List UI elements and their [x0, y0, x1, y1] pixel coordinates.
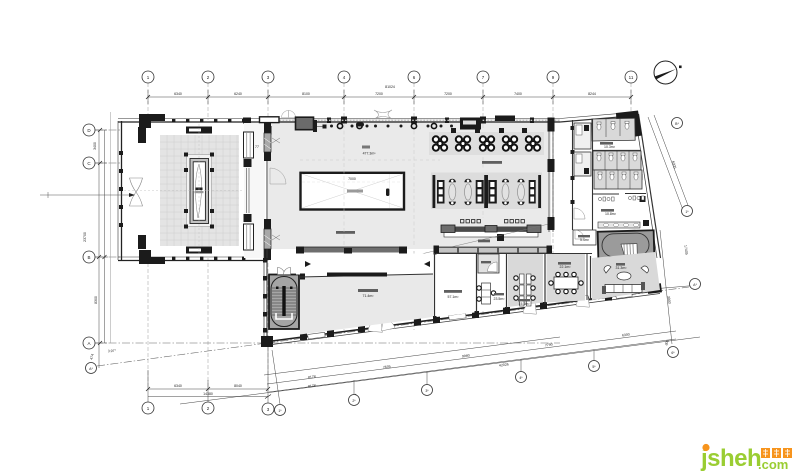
svg-text:71.4m²: 71.4m² — [363, 294, 375, 298]
svg-text:7200: 7200 — [444, 92, 452, 96]
svg-text:7000: 7000 — [348, 177, 356, 181]
svg-text:6340: 6340 — [174, 92, 182, 96]
svg-text:6240: 6240 — [234, 92, 242, 96]
svg-text:23700: 23700 — [83, 232, 87, 242]
svg-text:3.97°: 3.97° — [108, 349, 117, 354]
svg-text:.com: .com — [758, 457, 788, 472]
svg-text:B: B — [87, 255, 90, 260]
svg-text:7200: 7200 — [375, 92, 383, 96]
svg-text:10.3m²: 10.3m² — [604, 145, 616, 149]
svg-text:11: 11 — [629, 75, 634, 80]
svg-text:5.4m²: 5.4m² — [580, 238, 590, 242]
svg-text:3400: 3400 — [93, 142, 97, 150]
svg-text:8300: 8300 — [94, 296, 98, 304]
svg-text:A: A — [87, 341, 90, 346]
svg-text:8100: 8100 — [302, 92, 310, 96]
svg-text:B*: B* — [675, 122, 679, 126]
svg-text:23.5m²: 23.5m² — [494, 297, 506, 301]
svg-text:A*: A* — [693, 283, 697, 287]
svg-text:31.3m²: 31.3m² — [616, 266, 628, 270]
svg-text:6340: 6340 — [174, 384, 182, 388]
svg-text:15.1m²: 15.1m² — [519, 302, 531, 306]
svg-text:77: 77 — [255, 145, 259, 149]
svg-text:7400: 7400 — [514, 92, 522, 96]
svg-text:22.1m²: 22.1m² — [560, 265, 572, 269]
svg-text:A*: A* — [89, 367, 93, 371]
svg-text:477.3m²: 477.3m² — [363, 152, 377, 156]
svg-text:8040: 8040 — [234, 384, 242, 388]
svg-text:81024: 81024 — [385, 85, 395, 89]
svg-text:57.1m²: 57.1m² — [448, 295, 460, 299]
svg-text:10.8m²: 10.8m² — [605, 212, 617, 216]
svg-text:14380: 14380 — [203, 392, 213, 396]
svg-text:8244: 8244 — [588, 92, 596, 96]
